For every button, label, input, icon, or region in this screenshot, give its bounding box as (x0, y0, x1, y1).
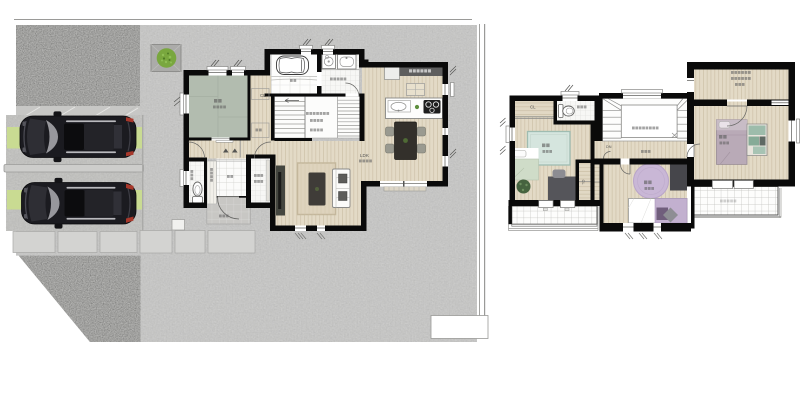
svg-text:DN: DN (606, 145, 612, 149)
svg-text:LDK: LDK (360, 153, 370, 158)
svg-text:CL: CL (530, 105, 536, 110)
svg-text:CL: CL (581, 180, 586, 186)
svg-text:CL: CL (260, 93, 266, 98)
